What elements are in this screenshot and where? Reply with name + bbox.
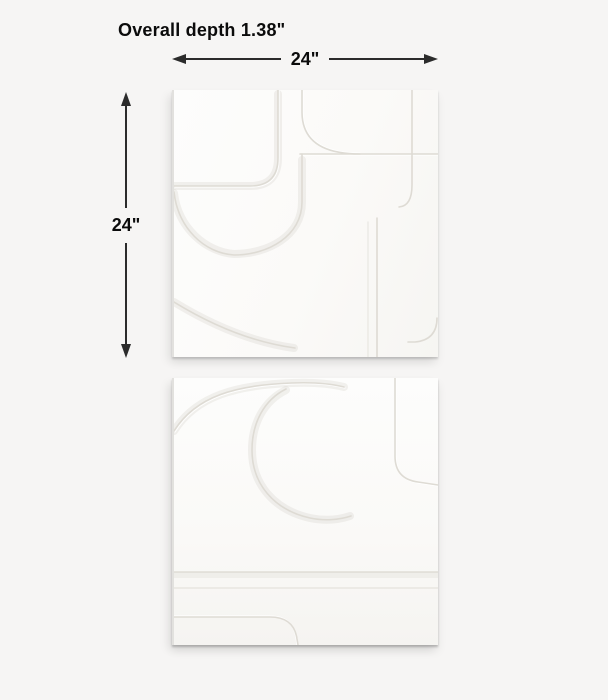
dimension-line (125, 106, 127, 208)
width-label: 24" (291, 49, 320, 70)
height-label: 24" (112, 215, 141, 236)
arrowhead-right-icon (424, 54, 438, 64)
relief-highlight-lines (174, 379, 438, 645)
arrowhead-up-icon (121, 92, 131, 106)
top-relief-art (174, 90, 438, 357)
relief-highlight-lines (175, 90, 438, 187)
top-relief-panel (172, 90, 438, 357)
product-dimension-diagram: Overall depth 1.38" 24" 24" (0, 0, 608, 700)
arrowhead-down-icon (121, 344, 131, 358)
height-dimension: 24" (104, 92, 148, 358)
arrowhead-left-icon (172, 54, 186, 64)
dimension-line (186, 58, 281, 60)
dimension-line (329, 58, 424, 60)
relief-soft-shading (174, 94, 302, 348)
relief-crisp-lines (174, 90, 438, 357)
relief-crisp-lines (174, 378, 438, 645)
bottom-relief-panel (172, 378, 438, 645)
dimension-line (125, 243, 127, 345)
width-dimension: 24" (172, 48, 438, 70)
bottom-relief-art (174, 378, 438, 645)
relief-soft-shading (174, 383, 438, 574)
depth-label: Overall depth 1.38" (118, 20, 285, 41)
